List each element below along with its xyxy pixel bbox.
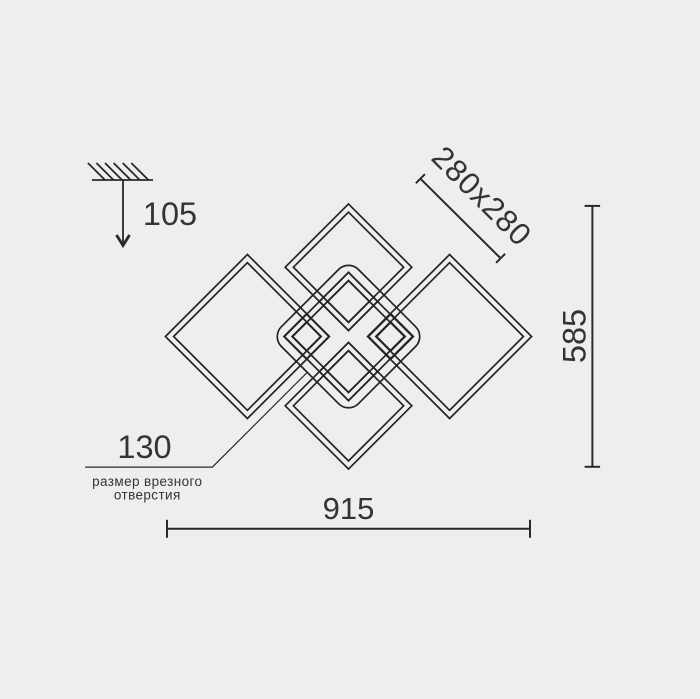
svg-text:130: 130 [117,429,171,465]
svg-text:отверстия: отверстия [114,488,181,503]
svg-text:585: 585 [557,309,593,363]
svg-text:915: 915 [323,491,375,526]
svg-text:105: 105 [143,196,197,232]
